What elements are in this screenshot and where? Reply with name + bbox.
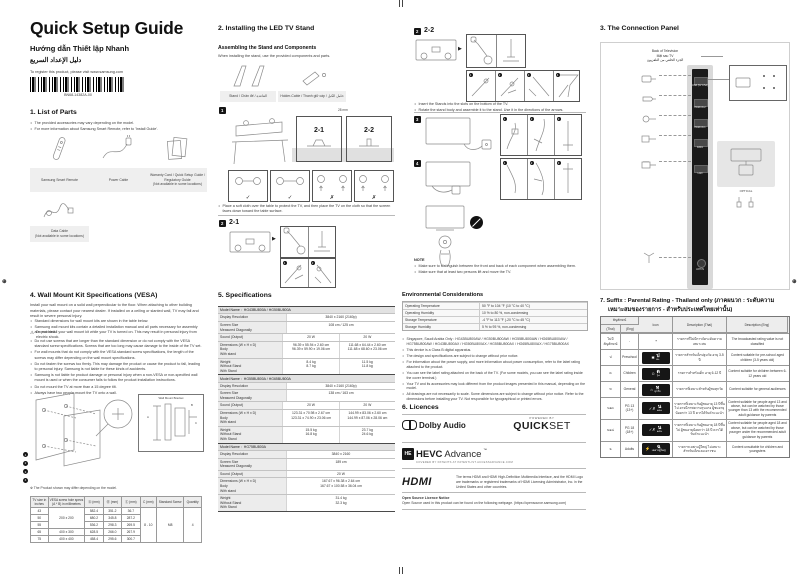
cell: 680.2 bbox=[85, 515, 103, 522]
usb-cable-icon bbox=[641, 71, 657, 89]
bullet-item: The provided accessories may vary depend… bbox=[30, 121, 202, 126]
tv-front-figure bbox=[424, 204, 466, 237]
rating-icon-age: ๑๓+ bbox=[657, 410, 662, 413]
substep-number: 3 bbox=[557, 117, 561, 121]
cell: 458.4 bbox=[85, 536, 103, 543]
col-header: Ⓒ (mm) bbox=[122, 497, 140, 508]
table-header-row: TV size in inches VESA screw hole specs … bbox=[31, 497, 202, 508]
cell: 295.6 bbox=[103, 536, 121, 543]
fold-mark-bottom bbox=[399, 567, 400, 574]
rating-desc-thai: รายการที่เหมาะกับผู้ชมอายุ 18 ปีขึ้นไป ผ… bbox=[673, 420, 727, 441]
rating-thai: ท bbox=[601, 382, 621, 397]
substep-number: 1 bbox=[503, 161, 507, 165]
spec-block-1: Model Name : HG43BU800A / HG50BU800A Dis… bbox=[218, 306, 395, 374]
barcode-label: BN68-14382A-00 bbox=[30, 93, 126, 97]
bullet-item: You can see the label rating attached on… bbox=[402, 371, 586, 381]
rating-desc-eng: Content suitable for children between 6-… bbox=[727, 366, 788, 381]
back-of-tv-label: Back of Television Mặt sau TV الجزء الخل… bbox=[629, 49, 701, 63]
spec-block-3: Model Name : HG75BU800A Display Resoluti… bbox=[218, 443, 395, 511]
rating-icon-cell: ⌂ ททุกวัย bbox=[639, 382, 673, 397]
value: 167.67 x 96.38 x 2.64 cm 167.67 x 100.58… bbox=[286, 478, 395, 494]
hdmi-logo: HDMI bbox=[402, 476, 432, 488]
connection-panel-strip: USB (5V 0.5A) HDMI IN 2 HDMI IN 1 DATA L… bbox=[692, 69, 708, 285]
value: 138 cm / 163 cm bbox=[286, 390, 395, 401]
rating-desc-eng: Content suitable for people aged 13 and … bbox=[727, 398, 788, 419]
substep-number: 4 bbox=[556, 73, 560, 77]
antenna-icon bbox=[641, 251, 657, 269]
col-header-eng: (Eng) bbox=[621, 325, 639, 333]
assembly-substeps-box-2-1: 1 2 bbox=[280, 258, 336, 288]
value: 20 W bbox=[282, 402, 338, 409]
label: Dimensions (W x H x D) Body With stand bbox=[218, 342, 282, 358]
substep-number: 1 bbox=[503, 117, 507, 121]
label: Display Resolution bbox=[218, 314, 286, 321]
rating-icon: ⌂ ททุกวัย bbox=[642, 384, 670, 396]
rating-icon: ✓✗ น๑๓+ bbox=[642, 402, 670, 414]
cell: 8 - 10 bbox=[140, 508, 157, 543]
barcode bbox=[30, 77, 126, 92]
rating-icon: ☺ ด๖+ bbox=[642, 368, 670, 380]
connector-line bbox=[659, 95, 691, 96]
registration-mark-right: ⊕ bbox=[792, 279, 797, 285]
label: Screen Size Measured Diagonally bbox=[218, 390, 286, 401]
label: Display Resolution bbox=[218, 383, 286, 390]
value: 3840 x 2160 bbox=[286, 451, 395, 458]
rating-icon-glyph: ⌂ bbox=[650, 387, 652, 392]
substep-cell: 3 bbox=[525, 71, 554, 101]
note-bullets: Make sure to distinguish between the fro… bbox=[414, 264, 586, 275]
figure-callouts: 1234 bbox=[23, 452, 28, 483]
spec-table: Model Name : HG43BU800A / HG50BU800A Dis… bbox=[218, 306, 395, 512]
bullet-item: Make sure to distinguish between the fro… bbox=[414, 264, 586, 269]
col-header-symbol: สัญลักษณ์ bbox=[601, 317, 639, 325]
step-3-marker: 3 bbox=[414, 116, 421, 123]
check-mark: ✓ bbox=[271, 195, 309, 201]
dim-b-label: B bbox=[191, 403, 193, 407]
stand-legs-icon bbox=[228, 62, 268, 94]
rating-desc-thai: รายการเฉพาะผู้ใหญ่ ไม่เหมาะสำหรับเด็กและ… bbox=[673, 442, 727, 457]
value: -4 °F to 113 °F (-20 °C to 45 °C) bbox=[479, 317, 587, 323]
ant-port bbox=[697, 259, 706, 268]
rating-desc-eng: Content suitable for people aged 18 and … bbox=[727, 420, 788, 441]
section-specs-heading: 5. Specifications bbox=[218, 292, 272, 299]
rating-row: ป Preschool ✱ ป๓+ รายการสำหรับเด็กปฐมวัย… bbox=[601, 349, 789, 365]
substep-number: 2 bbox=[498, 73, 502, 77]
value: 3840 x 2160 (2160p) bbox=[286, 314, 395, 321]
value: 20 W bbox=[282, 334, 338, 341]
value: HG75BU800A bbox=[244, 445, 266, 449]
label: Weight Without Stand With Stand bbox=[218, 495, 286, 511]
stand-position-bad-panel-1: ✗ bbox=[312, 170, 352, 202]
rating-icon-glyph: ☺ bbox=[651, 371, 655, 376]
hdmi2-port-label: HDMI IN 2 bbox=[691, 106, 709, 109]
quickset-quick: QUICK bbox=[513, 420, 549, 432]
rating-icon: ✱ ป๓+ bbox=[642, 352, 670, 364]
cell: 55 bbox=[31, 522, 49, 529]
label: Dimensions (W x H x D) Body With stand bbox=[218, 410, 282, 426]
rating-thai: น๑๘ bbox=[601, 420, 621, 441]
value: 108 cm / 125 cm bbox=[286, 322, 395, 333]
label: Display Resolution bbox=[218, 451, 286, 458]
cell: M8 bbox=[157, 508, 184, 543]
cell: 287.2 bbox=[122, 515, 140, 522]
connection-figure-frame: Back of Television Mặt sau TV الجزء الخل… bbox=[600, 42, 790, 290]
prohibition-icon bbox=[470, 216, 483, 229]
quickset-logo: POWERED BY QUICKSET bbox=[498, 416, 586, 432]
rating-icon: ⚡ ฉเฉพาะผู้ใหญ่ bbox=[642, 443, 670, 455]
value: HG55BU800A / HG65BU800A bbox=[244, 377, 291, 381]
divider bbox=[218, 215, 395, 216]
variant-2-1-box: 2-1 bbox=[296, 116, 342, 162]
value: 96.39 x 55.94 x 2.60 cm 96.39 x 59.90 x … bbox=[282, 342, 338, 358]
rating-icon-age: ๓+ bbox=[656, 359, 659, 362]
value: 23.7 kg 24.6 kg bbox=[339, 427, 395, 443]
cable-routing-box-b: 1 2 3 bbox=[500, 158, 582, 200]
section-stand-heading: 2. Installing the LED TV Stand bbox=[218, 25, 314, 32]
hevc-bold: HEVC bbox=[416, 449, 442, 460]
rating-icon-cell: ✓✗ น๑๓+ bbox=[639, 398, 673, 419]
table-row: Operating Humidity 10 % to 80 %, non-con… bbox=[403, 309, 587, 316]
rating-table: สัญลักษณ์ Icon Description (Thai) Descri… bbox=[600, 316, 790, 458]
dim-a-label: A bbox=[147, 415, 149, 419]
connector-line bbox=[659, 161, 691, 162]
table-row: Storage Temperature -4 °F to 113 °F (-20… bbox=[403, 316, 587, 323]
cell: 400 x 300 bbox=[48, 529, 85, 536]
lan-port-label: LAN bbox=[691, 172, 709, 175]
tv-face-down-figure bbox=[228, 112, 290, 171]
part-label-warranty: Warranty Card / Quick Setup Guide / Regu… bbox=[148, 168, 207, 192]
hdmi-cable-icon bbox=[641, 91, 657, 109]
register-note: To register this product, please visit w… bbox=[30, 70, 123, 76]
label: Sound (Output) bbox=[218, 402, 282, 409]
divider bbox=[402, 414, 586, 415]
leader-line bbox=[701, 56, 723, 57]
rating-icon: - bbox=[642, 336, 670, 348]
section-environment-heading: Environmental Considerations bbox=[402, 292, 483, 298]
col-header: Ⓐ (mm) bbox=[85, 497, 103, 508]
documents-icon bbox=[148, 133, 205, 165]
substep-cell: 3 bbox=[555, 159, 581, 199]
optical-jack-icon bbox=[747, 195, 755, 213]
cell: 75 bbox=[31, 536, 49, 543]
rating-eng: General bbox=[621, 382, 639, 397]
bullet-item: For more information about Samsung Smart… bbox=[30, 127, 202, 132]
part-label-remote: Samsung Smart Remote bbox=[30, 168, 89, 192]
bullet-item: Standard dimensions for wall mount kits … bbox=[30, 319, 202, 324]
bullet-item: Your TV and its accessories may look dif… bbox=[402, 382, 586, 392]
cable-routing-box-a: 1 2 3 bbox=[500, 114, 582, 156]
tv-back-2-1-figure bbox=[228, 230, 272, 261]
lan-cable-icon bbox=[641, 157, 657, 175]
callout-number: 2 bbox=[23, 461, 28, 466]
value: 20 W bbox=[339, 334, 395, 341]
label: Storage Temperature bbox=[403, 317, 479, 323]
cell: 36.7 bbox=[122, 508, 140, 515]
dimension-label: 28 mm bbox=[338, 108, 348, 112]
col-header: Ⓑ (mm) bbox=[103, 497, 121, 508]
bullet-item: All drawings are not necessarily to scal… bbox=[402, 392, 586, 402]
ant-port-label: ANT IN bbox=[691, 268, 709, 271]
table-row: Storage Humidity 5 % to 95 %, non-conden… bbox=[403, 323, 587, 330]
value: 123.31 x 70.98 x 2.67 cm 123.31 x 74.90 … bbox=[282, 410, 338, 426]
bullet-item: Insert the Stands into the slots on the … bbox=[414, 102, 584, 107]
value: 50 °F to 104 °F (10 °C to 40 °C) bbox=[479, 303, 587, 309]
spec-block-2: Model Name : HG55BU800A / HG65BU800A Dis… bbox=[218, 374, 395, 442]
cell: 536.2 bbox=[85, 522, 103, 529]
holder-cable-icon bbox=[300, 68, 330, 93]
col-header: Quantity bbox=[184, 497, 202, 508]
bullet-item: For wall mounts that do not comply with … bbox=[30, 350, 202, 360]
rating-desc-eng: The broadcasted rating value is not clas… bbox=[727, 334, 788, 349]
substep-cell: 1 bbox=[467, 71, 496, 101]
part-label-power-cable: Power Cable bbox=[89, 168, 148, 192]
hevc-tm: ™ bbox=[483, 448, 487, 452]
label: Model Name : bbox=[220, 308, 242, 312]
cell: 50 bbox=[31, 515, 49, 522]
value: 144.99 x 83.06 x 2.60 cm 144.99 x 87.06 … bbox=[339, 410, 395, 426]
col-header: TV size in inches bbox=[31, 497, 49, 508]
label: Weight Without Stand With Stand bbox=[218, 359, 282, 375]
value: 15.5 kg 16.8 kg bbox=[282, 427, 338, 443]
substep-cell: 1 bbox=[501, 115, 528, 155]
value: 111.68 x 64.44 x 2.60 cm 111.68 x 68.60 … bbox=[339, 342, 395, 358]
quick-setup-guide-page: ⊕ ⊕ Quick Setup Guide Hướng dẫn Thiết lậ… bbox=[0, 0, 802, 574]
vesa-intro: Install your wall mount on a solid wall … bbox=[30, 303, 202, 320]
rating-icon: ✓✗ น๑๘+ bbox=[642, 424, 670, 436]
cloth-note: Place a soft cloth over the table to pro… bbox=[218, 204, 399, 214]
rating-icon-glyph: ✓✗ bbox=[649, 427, 656, 432]
rating-thai: ป bbox=[601, 350, 621, 365]
registration-mark-left: ⊕ bbox=[2, 279, 7, 285]
substep-cell: 1 bbox=[281, 259, 309, 287]
variant-2-1-label: 2-1 bbox=[297, 127, 341, 134]
rating-row: ฉ Adults ⚡ ฉเฉพาะผู้ใหญ่ รายการเฉพาะผู้ใ… bbox=[601, 441, 789, 457]
label: Operating Temperature bbox=[403, 303, 479, 309]
rating-eng: - bbox=[621, 334, 639, 349]
check-mark: ✓ bbox=[229, 195, 267, 201]
rating-desc-eng: Content suitable for general audiences bbox=[727, 382, 788, 397]
hevc-subtext: COVERED BY PATENTS AT PATENTLIST.ACCESSA… bbox=[416, 461, 513, 464]
cell: 43 bbox=[31, 508, 49, 515]
dolby-label: Dolby Audio bbox=[419, 421, 466, 430]
section-connection-heading: 3. The Connection Panel bbox=[600, 25, 679, 32]
dolby-dd-icon bbox=[410, 420, 418, 430]
stand-position-ok-panel-1: ✓ bbox=[228, 170, 268, 202]
label: Storage Humidity bbox=[403, 324, 479, 330]
optical-cable-icon bbox=[641, 111, 657, 129]
value: 20 W bbox=[286, 471, 395, 478]
hevc-badge-icon: HE bbox=[402, 448, 414, 460]
environment-bullets: Singapore, Saudi Arabia Only : HG43BU800… bbox=[402, 337, 586, 402]
rating-thai: ฉ bbox=[601, 442, 621, 457]
rating-icon-age: ๖+ bbox=[657, 375, 660, 378]
substep-number: 2 bbox=[311, 261, 315, 265]
step-2-1-label: 2-1 bbox=[229, 219, 239, 226]
bullet-item: Samsung is not liable for product damage… bbox=[30, 373, 202, 383]
data-cable-icon bbox=[30, 194, 87, 224]
substep-cell: 2 bbox=[309, 259, 335, 287]
part-label-data-cable: Data Cable (Not available in some locati… bbox=[30, 226, 89, 242]
label: Sound (Output) bbox=[218, 471, 286, 478]
bullet-item: This device is a Class B digital apparat… bbox=[402, 348, 586, 353]
divider bbox=[414, 112, 586, 113]
remote-icon bbox=[30, 133, 87, 165]
rating-icon-cell: - bbox=[639, 334, 673, 349]
usb-port-label: USB (5V 0.5A) bbox=[691, 84, 709, 87]
oss-title: Open Source Licence Notice bbox=[402, 496, 449, 500]
step-1-marker: 1 bbox=[219, 107, 226, 114]
value: 11.5 kg 11.8 kg bbox=[339, 359, 395, 375]
rating-icon-cell: ✱ ป๓+ bbox=[639, 350, 673, 365]
component-label-holder: Holder-Cable / Thanh giữ cáp / حامل الكب… bbox=[278, 91, 346, 102]
screwdriver-detail-box bbox=[280, 226, 336, 258]
power-cable-icon bbox=[89, 133, 146, 165]
rating-eng: Adults bbox=[621, 442, 639, 457]
table-row: 43 200 x 200 582.4 351.2 36.7 8 - 10 M8 … bbox=[31, 508, 202, 515]
callout-number: 4 bbox=[23, 478, 28, 483]
hevc-logo: HE HEVC Advance ™ bbox=[402, 448, 487, 460]
substep-cell: 2 bbox=[496, 71, 525, 101]
rating-icon-cell: ☺ ด๖+ bbox=[639, 366, 673, 381]
power-connect-figure-a bbox=[424, 116, 496, 161]
bullet-item: Make sure that at least two persons lift… bbox=[414, 270, 586, 275]
data-cable-icon-small bbox=[641, 131, 657, 149]
rating-icon-glyph: ✓✗ bbox=[649, 406, 656, 411]
bullet-item: For information about the power supply, … bbox=[402, 360, 586, 370]
optical-device-inset bbox=[717, 141, 775, 187]
dolby-logo: Dolby Audio bbox=[402, 420, 466, 430]
label: Dimensions (W x H x D) Body With stand bbox=[218, 478, 286, 494]
section-rating-heading-line2: เหมาะสมของรายการ - สำหรับประเทศไทยเท่านั… bbox=[608, 304, 732, 314]
inset-leader-line bbox=[708, 79, 729, 80]
substep-number: 3 bbox=[527, 73, 531, 77]
cell: 400 x 400 bbox=[48, 536, 85, 543]
bullet-item: The design and specifications are subjec… bbox=[402, 354, 586, 359]
rating-desc-thai: รายการที่เหมาะสำหรับผู้ชมทุกวัย bbox=[673, 382, 727, 397]
label: Model Name : bbox=[220, 445, 242, 449]
rating-icon-cell: ✓✗ น๑๘+ bbox=[639, 420, 673, 441]
connector-line bbox=[659, 115, 691, 116]
stand-desc: When installing the stand, use the provi… bbox=[218, 54, 394, 60]
rating-rows: ไม่มีสัญลักษณ์ - - รายการที่ไม่มีการจัดร… bbox=[601, 333, 789, 457]
power-connect-figure-b bbox=[424, 160, 496, 201]
label: Sound (Output) bbox=[218, 334, 282, 341]
note-title: NOTE bbox=[414, 258, 425, 262]
label: Screen Size Measured Diagonally bbox=[218, 459, 286, 470]
col-header-thai: (Thai) bbox=[601, 325, 621, 333]
stand-subheading: Assembling the Stand and Components bbox=[218, 45, 316, 51]
dim-c-label: C bbox=[195, 421, 197, 425]
rating-desc-eng: Content unsuitable for children and youn… bbox=[727, 442, 788, 457]
variant-2-2-label: 2-2 bbox=[347, 127, 391, 134]
stand-position-ok-panel-2: ✓ bbox=[270, 170, 310, 202]
fold-mark-top2 bbox=[402, 0, 403, 7]
bullet-item: Rotate the stand body and assemble it to… bbox=[414, 108, 584, 113]
rating-row: ด Children ☺ ด๖+ รายการสำหรับเด็ก อายุ 6… bbox=[601, 365, 789, 381]
cell: 582.4 bbox=[85, 508, 103, 515]
substep-number: 1 bbox=[469, 73, 473, 77]
col-header-icon: Icon bbox=[639, 317, 673, 333]
value: HG43BU800A / HG50BU800A bbox=[244, 308, 291, 312]
rating-thai: ไม่มีสัญลักษณ์ bbox=[601, 334, 621, 349]
page-subtitle-arabic: دليل الإعداد السريع bbox=[30, 56, 81, 64]
rating-desc-eng: Content suitable for pre-school aged chi… bbox=[727, 350, 788, 365]
environment-table: Operating Temperature 50 °F to 104 °F (1… bbox=[402, 301, 588, 331]
col-header: Standard Screw bbox=[157, 497, 184, 508]
cell: 65 bbox=[31, 529, 49, 536]
section-list-of-parts-heading: 1. List of Parts bbox=[30, 109, 77, 116]
rating-row: น๑๘ PG 18 (18+) ✓✗ น๑๘+ รายการที่เหมาะกั… bbox=[601, 419, 789, 441]
value: 5 % to 95 %, non-condensing bbox=[479, 324, 587, 330]
rating-desc-thai: รายการที่ไม่มีการจัดระดับความเหมาะสม bbox=[673, 334, 727, 349]
parts-bullets: The provided accessories may vary depend… bbox=[30, 121, 202, 132]
cell: 200 x 200 bbox=[48, 508, 85, 529]
optical-label: OPTICAL bbox=[717, 189, 775, 193]
rating-eng: PG 18 (18+) bbox=[621, 420, 639, 441]
stand-position-bad-panel-2: ✗ bbox=[354, 170, 394, 202]
col-header: C (mm) bbox=[140, 497, 157, 508]
tv-back-2-2-figure bbox=[414, 38, 458, 69]
cell: 351.2 bbox=[103, 508, 121, 515]
arrow-right-icon: ▶ bbox=[272, 236, 276, 242]
screwdriver-detail-box-2-2 bbox=[466, 34, 526, 68]
divider bbox=[402, 492, 586, 493]
hdmi-detail-inset bbox=[729, 65, 787, 101]
rating-thai: น๑๓ bbox=[601, 398, 621, 419]
step-2-2-label: 2-2 bbox=[424, 27, 434, 34]
quickset-label: QUICKSET bbox=[498, 420, 586, 432]
cross-mark: ✗ bbox=[355, 195, 393, 201]
connector-line bbox=[659, 75, 691, 76]
rating-eng: PG 13 (13+) bbox=[621, 398, 639, 419]
cell: 269.5 bbox=[122, 522, 140, 529]
fold-mark-top bbox=[399, 0, 400, 7]
rating-icon-cell: ⚡ ฉเฉพาะผู้ใหญ่ bbox=[639, 442, 673, 457]
bullet-item: Singapore, Saudi Arabia Only : HG43BU800… bbox=[402, 337, 586, 347]
rating-eng: Children bbox=[621, 366, 639, 381]
fold-mark-bottom2 bbox=[402, 567, 403, 574]
callout-number: 3 bbox=[23, 469, 28, 474]
table-row: Operating Temperature 50 °F to 104 °F (1… bbox=[403, 302, 587, 309]
rating-icon-age: ทุกวัย bbox=[654, 391, 660, 394]
bullet-item: Do not fasten the screws too firmly. Thi… bbox=[30, 362, 202, 372]
divider bbox=[402, 468, 586, 469]
cross-mark: ✗ bbox=[313, 195, 351, 201]
value: 189 cm bbox=[286, 459, 395, 470]
rating-row: น๑๓ PG 13 (13+) ✓✗ น๑๓+ รายการที่เหมาะกั… bbox=[601, 397, 789, 419]
col-header-desc-eng: Description (Eng) bbox=[727, 317, 788, 333]
dolby-dd-icon bbox=[402, 420, 410, 430]
rating-icon-glyph: ⚡ bbox=[645, 446, 650, 451]
vesa-fig-caption: ※ The Product shown may differ depending… bbox=[30, 486, 117, 490]
cell: 266.0 bbox=[103, 529, 121, 536]
label: Model Name : bbox=[220, 377, 242, 381]
connector-line bbox=[659, 135, 691, 136]
value: 10 % to 80 %, non-condensing bbox=[479, 310, 587, 316]
rating-icon-age: ๑๘+ bbox=[657, 431, 662, 434]
substep-number: 3 bbox=[557, 161, 561, 165]
substep-cell: 1 bbox=[501, 159, 528, 199]
rating-desc-thai: รายการที่เหมาะกับผู้ชมอายุ 13 ปีขึ้นไป อ… bbox=[673, 398, 727, 419]
label: Operating Humidity bbox=[403, 310, 479, 316]
hdmi1-port-label: HDMI IN 1 bbox=[691, 126, 709, 129]
step-2-marker: 2 bbox=[219, 220, 226, 227]
rating-thai: ด bbox=[601, 366, 621, 381]
cell: 300.7 bbox=[122, 536, 140, 543]
rating-row: ท General ⌂ ททุกวัย รายการที่เหมาะสำหรับ… bbox=[601, 381, 789, 397]
section-licences-heading: 6. Licences bbox=[402, 404, 439, 411]
rating-eng: Preschool bbox=[621, 350, 639, 365]
